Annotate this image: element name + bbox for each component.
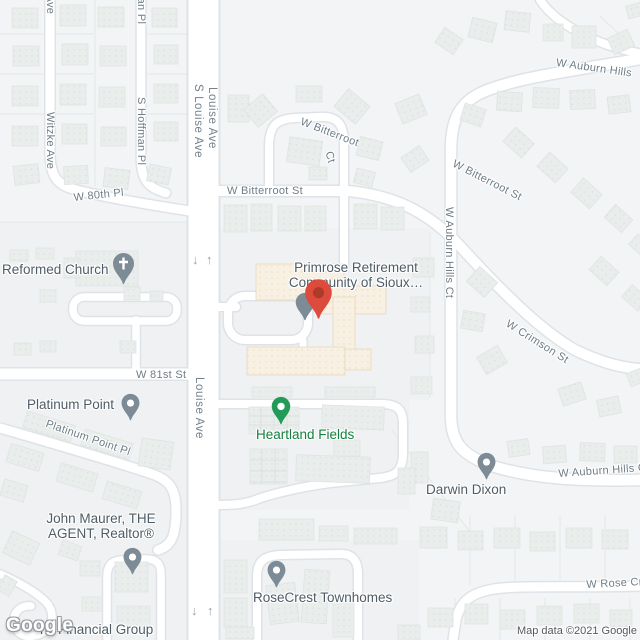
building-footprint xyxy=(152,8,177,27)
building-footprint xyxy=(504,11,531,33)
building-footprint xyxy=(458,531,483,550)
green-pin-icon xyxy=(270,396,292,426)
building-footprint xyxy=(319,526,348,541)
building-footprint xyxy=(334,440,360,456)
building-footprint xyxy=(602,530,628,549)
building-footprint xyxy=(250,449,287,484)
lane-arrow-up-icon: ↑ xyxy=(206,253,213,266)
building-footprint xyxy=(12,86,38,106)
building-footprint xyxy=(251,204,272,231)
building-footprint xyxy=(40,341,56,352)
building-footprint xyxy=(558,382,586,407)
building-footprint xyxy=(36,248,54,259)
platinum-point-marker[interactable] xyxy=(120,393,141,427)
building-footprint xyxy=(496,91,522,112)
building-footprint xyxy=(101,127,126,146)
map-attribution[interactable]: Map data ©2021 Google xyxy=(517,625,637,637)
map-viewport[interactable]: Witzke Ave Witzke Ave S Hoffman Pl S Hof… xyxy=(0,0,640,640)
pin-icon xyxy=(476,452,497,481)
john-maurer-marker[interactable] xyxy=(122,547,143,581)
street-label-louise-ave: Louise Ave xyxy=(206,87,218,149)
building-footprint xyxy=(120,341,136,353)
building-footprint xyxy=(411,297,430,312)
building-footprint xyxy=(325,387,375,397)
building-footprint xyxy=(62,124,87,144)
building-footprint xyxy=(431,498,461,523)
building-footprint xyxy=(566,528,592,548)
pin-icon xyxy=(266,560,287,589)
building-footprint xyxy=(466,267,497,298)
commercial-building-footprint xyxy=(247,347,345,375)
street-label-witzke-partial: Witzke Ave xyxy=(44,0,56,14)
building-footprint xyxy=(420,527,447,548)
building-footprint xyxy=(333,600,354,637)
building-footprint xyxy=(570,89,596,109)
lane-arrow-down-icon: ↓ xyxy=(192,253,199,266)
building-footprint xyxy=(13,164,40,186)
building-footprint xyxy=(411,377,432,394)
building-footprint xyxy=(607,95,631,115)
building-footprint xyxy=(98,7,124,27)
building-footprint xyxy=(621,285,640,312)
building-footprint xyxy=(537,152,568,183)
pin-icon xyxy=(122,547,143,576)
reformed-church-marker[interactable] xyxy=(111,252,136,291)
building-footprint xyxy=(596,396,621,417)
building-footprint xyxy=(381,207,404,230)
building-footprint xyxy=(354,528,397,544)
building-footprint xyxy=(224,205,247,232)
pin-icon xyxy=(120,393,141,422)
building-footprint xyxy=(10,250,28,261)
building-footprint xyxy=(12,8,38,28)
building-footprint xyxy=(154,45,178,64)
poi-label-reformed-church[interactable]: Reformed Church xyxy=(2,262,109,277)
building-footprint xyxy=(507,439,530,458)
building-footprint xyxy=(259,519,314,540)
google-logo[interactable]: Google xyxy=(6,615,73,637)
red-pin-icon xyxy=(303,278,334,321)
building-footprint xyxy=(100,46,126,66)
building-footprint xyxy=(468,17,497,42)
building-footprint xyxy=(103,168,130,190)
building-footprint xyxy=(286,137,322,166)
building-footprint xyxy=(614,446,637,463)
building-footprint xyxy=(574,604,599,623)
building-footprint xyxy=(82,597,102,611)
building-footprint xyxy=(629,234,640,256)
building-footprint xyxy=(62,44,88,65)
building-footprint xyxy=(226,627,254,639)
building-footprint xyxy=(296,86,322,102)
building-footprint xyxy=(354,204,377,229)
building-footprint xyxy=(415,336,434,353)
building-footprint xyxy=(533,88,560,109)
building-footprint xyxy=(543,24,563,41)
building-footprint xyxy=(461,310,486,332)
darwin-dixon-marker[interactable] xyxy=(476,452,497,486)
building-footprint xyxy=(398,625,420,640)
building-footprint xyxy=(465,604,488,624)
building-footprint xyxy=(626,2,640,19)
street-label-hoffman-partial: S Hoffman Pl xyxy=(135,0,147,24)
building-footprint xyxy=(309,167,327,180)
building-footprint xyxy=(14,343,31,355)
street-label-bitterroot-st: W Bitterroot St xyxy=(227,185,303,197)
building-footprint xyxy=(224,560,247,593)
church-pin-icon xyxy=(111,252,136,286)
building-footprint xyxy=(589,256,619,285)
building-footprint xyxy=(428,608,453,627)
building-footprint xyxy=(530,532,555,551)
building-footprint xyxy=(580,443,606,462)
street-label-louise-ave-2: Louise Ave xyxy=(193,377,205,439)
building-footprint xyxy=(150,291,163,301)
rosecrest-marker[interactable] xyxy=(266,560,287,594)
lane-arrow-up-icon: ↑ xyxy=(207,604,214,617)
building-footprint xyxy=(537,606,562,625)
building-footprint xyxy=(99,87,125,107)
street-label-witzke: Witzke Ave xyxy=(44,112,56,169)
building-footprint xyxy=(305,206,326,231)
building-footprint xyxy=(154,84,178,103)
building-footprint xyxy=(138,438,174,470)
building-footprint xyxy=(604,204,632,232)
building-footprint xyxy=(401,145,429,172)
building-footprint xyxy=(224,598,247,627)
building-footprint xyxy=(395,94,427,124)
building-footprint xyxy=(296,455,371,484)
building-footprint xyxy=(572,26,596,48)
building-footprint xyxy=(64,165,89,184)
building-footprint xyxy=(278,206,301,231)
building-footprint xyxy=(40,290,56,302)
building-footprint xyxy=(60,5,86,26)
building-footprint xyxy=(542,445,566,464)
building-footprint xyxy=(398,468,415,494)
building-footprint xyxy=(353,168,375,187)
building-footprint xyxy=(154,122,178,141)
building-footprint xyxy=(60,84,86,105)
building-footprint xyxy=(503,127,534,158)
commercial-building-footprint xyxy=(333,297,355,354)
street-label-w81st: W 81st St xyxy=(136,369,186,381)
building-footprint xyxy=(12,126,38,146)
building-footprint xyxy=(13,46,39,66)
primrose-marker[interactable] xyxy=(303,278,334,326)
poi-label-platinum-point[interactable]: Platinum Point xyxy=(27,397,114,412)
street-label-auburn-hills-ct: W Auburn Hills Ct xyxy=(443,207,455,298)
building-footprint xyxy=(494,528,520,548)
building-footprint xyxy=(435,27,463,54)
building-footprint xyxy=(80,561,100,576)
poi-label-john-maurer-line1: John Maurer, THE xyxy=(40,511,162,526)
heartland-fields-marker[interactable] xyxy=(270,396,292,431)
poi-label-john-maurer-line2: AGENT, Realtor® xyxy=(40,526,162,541)
street-label-s-louise-ave: S Louise Ave xyxy=(192,84,204,158)
building-footprint xyxy=(571,178,602,209)
building-footprint xyxy=(477,345,508,374)
street-label-hoffman: S Hoffman Pl xyxy=(135,97,147,165)
poi-label-primrose-line1: Primrose Retirement xyxy=(288,260,424,275)
poi-label-john-maurer[interactable]: John Maurer, THE AGENT, Realtor® xyxy=(40,511,162,541)
lane-arrow-down-icon: ↓ xyxy=(191,604,198,617)
commercial-building-footprint xyxy=(345,349,371,370)
